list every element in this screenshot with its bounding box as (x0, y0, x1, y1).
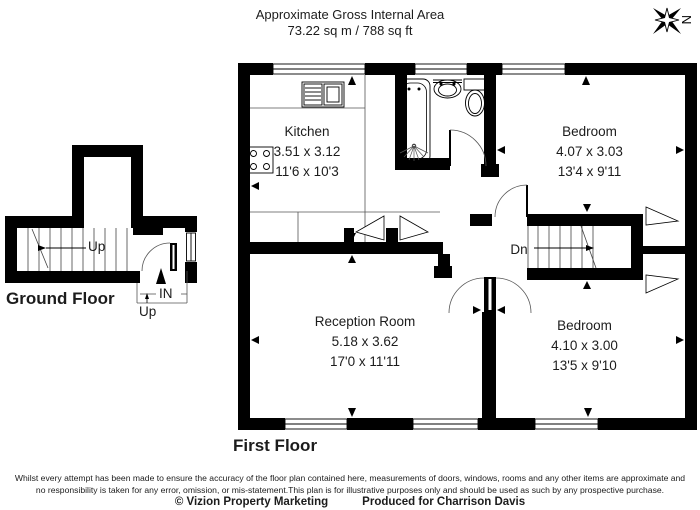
room-metric: 4.07 x 3.03 (527, 142, 652, 162)
ground-floor-label: Ground Floor (6, 289, 115, 309)
floorplan-page: Approximate Gross Internal Area 73.22 sq… (0, 0, 700, 510)
compass-icon: N (653, 8, 694, 34)
disclaimer-line1: Whilst every attempt has been made to en… (0, 472, 700, 484)
compass-north-label: N (679, 15, 694, 24)
wash-basin (433, 80, 462, 98)
copyright-text: © Vizion Property Marketing (175, 495, 328, 509)
ground-floor-plan (5, 145, 197, 303)
room-metric: 3.51 x 3.12 (246, 142, 368, 162)
room-name: Kitchen (246, 122, 368, 142)
room-label-bedroom1: Bedroom 4.07 x 3.03 13'4 x 9'11 (527, 122, 652, 182)
toilet (464, 79, 486, 116)
room-label-reception: Reception Room 5.18 x 3.62 17'0 x 11'11 (300, 312, 430, 372)
entrance-up-label: Up (139, 304, 156, 319)
room-name: Bedroom (527, 122, 652, 142)
footer-credits: © Vizion Property Marketing Produced for… (0, 495, 700, 509)
room-metric: 5.18 x 3.62 (300, 332, 430, 352)
first-floor-label: First Floor (233, 436, 317, 456)
kitchen-sink-unit (302, 82, 344, 107)
room-imperial: 17'0 x 11'11 (300, 352, 430, 372)
produced-for-text: Produced for Charrison Davis (362, 495, 525, 509)
room-label-bedroom2: Bedroom 4.10 x 3.00 13'5 x 9'10 (522, 316, 647, 376)
room-label-kitchen: Kitchen 3.51 x 3.12 11'6 x 10'3 (246, 122, 368, 182)
entrance-in-label: IN (159, 286, 173, 301)
room-imperial: 13'5 x 9'10 (522, 356, 647, 376)
stairs-dn-label: Dn (505, 242, 533, 257)
room-name: Bedroom (522, 316, 647, 336)
room-metric: 4.10 x 3.00 (522, 336, 647, 356)
ground-floor-stairs-up-label: Up (88, 239, 105, 254)
room-imperial: 11'6 x 10'3 (246, 162, 368, 182)
room-name: Reception Room (300, 312, 430, 332)
room-imperial: 13'4 x 9'11 (527, 162, 652, 182)
floor-plan-drawing: N (0, 0, 700, 510)
